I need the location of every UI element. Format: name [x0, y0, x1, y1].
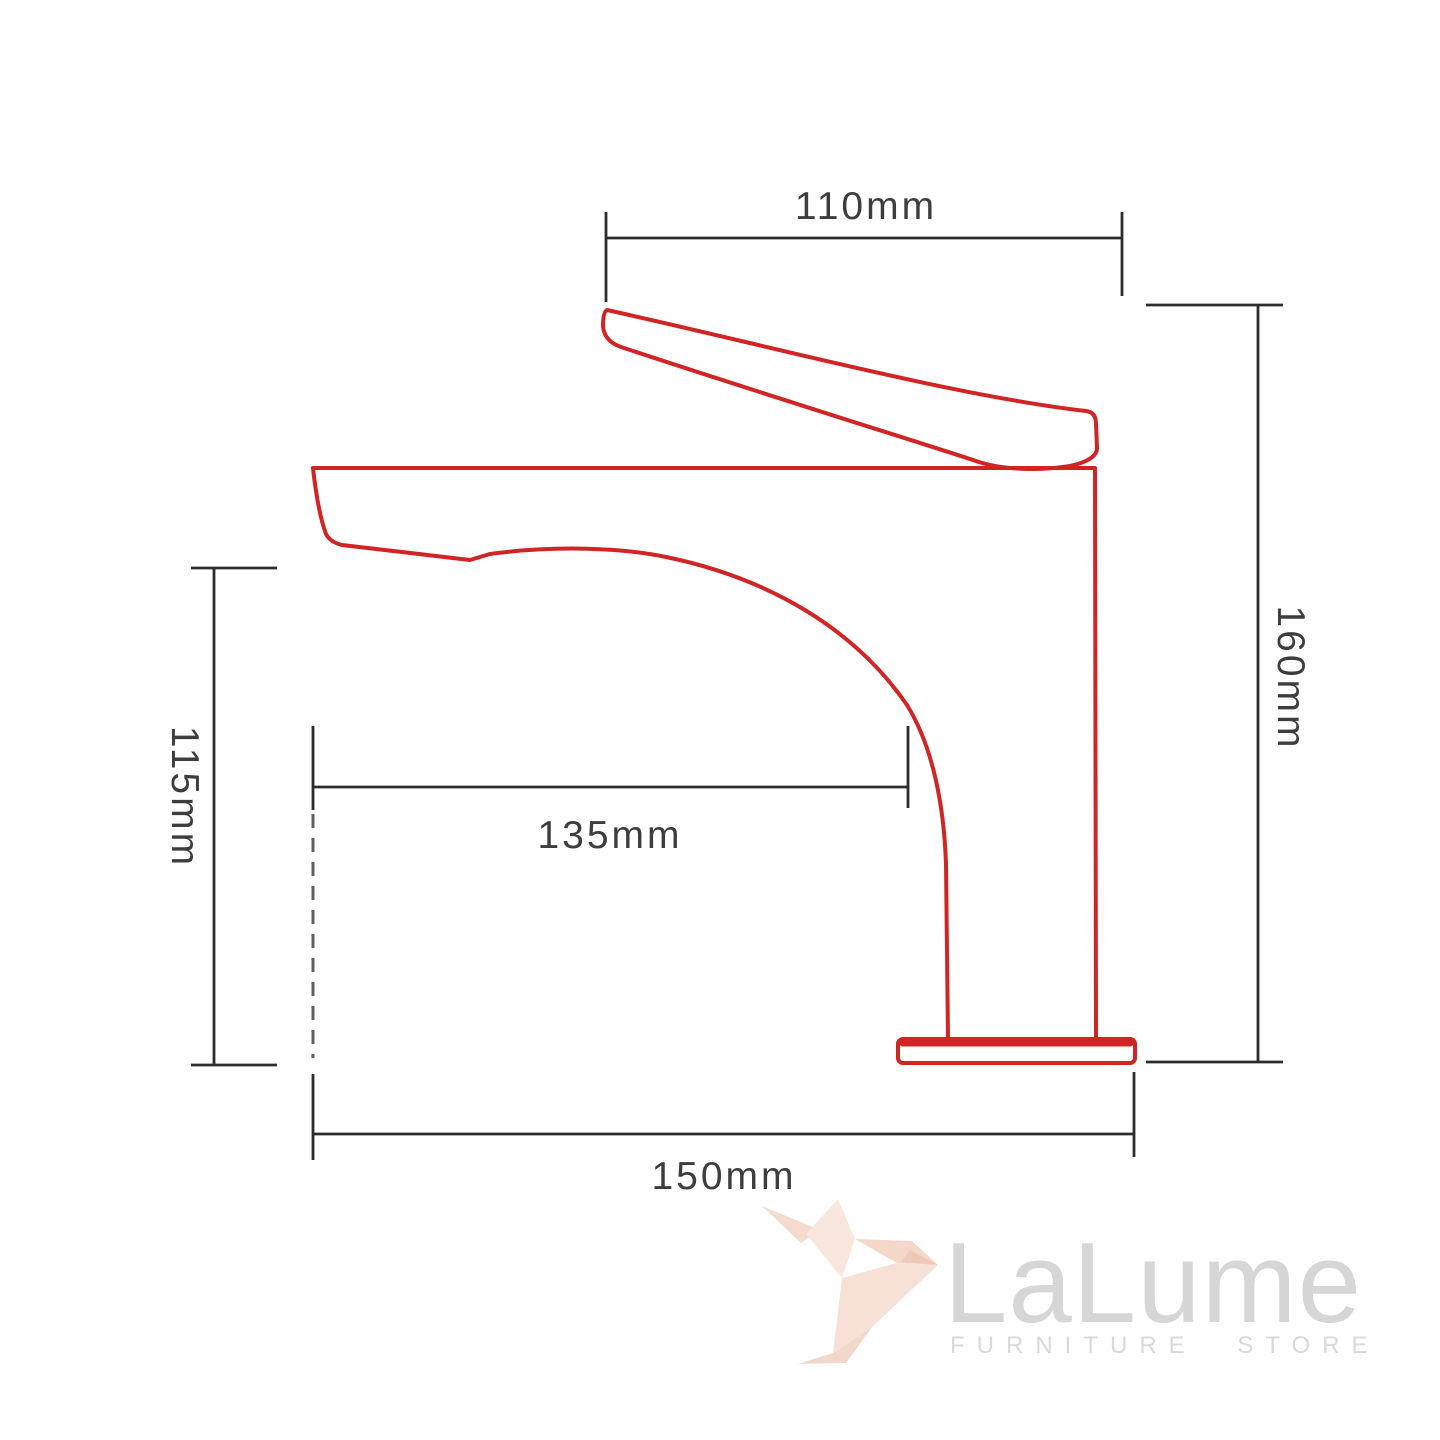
faucet-outline	[313, 310, 1135, 1063]
dimension-label-handle-length: 110mm	[795, 185, 937, 229]
watermark-tagline: FURNITURE STORE	[950, 1334, 1380, 1358]
bird-body	[833, 1263, 938, 1353]
dimension-label-overall-height: 160mm	[1268, 605, 1312, 750]
faucet-dimension-drawing: 110mm 160mm 115mm 135mm 150mm LaLume FUR…	[0, 0, 1440, 1440]
dimension-label-overall-depth: 150mm	[651, 1155, 796, 1199]
origami-hummingbird-icon	[762, 1199, 938, 1364]
bird-main-wing	[806, 1199, 855, 1278]
dimension-label-spout-reach: 135mm	[537, 814, 682, 858]
watermark-brand-name: LaLume	[944, 1227, 1362, 1341]
faucet-spout-curve	[313, 468, 948, 1040]
dimension-label-spout-clearance: 115mm	[162, 726, 206, 868]
faucet-handle	[603, 310, 1097, 469]
dimension-lines	[191, 212, 1283, 1160]
